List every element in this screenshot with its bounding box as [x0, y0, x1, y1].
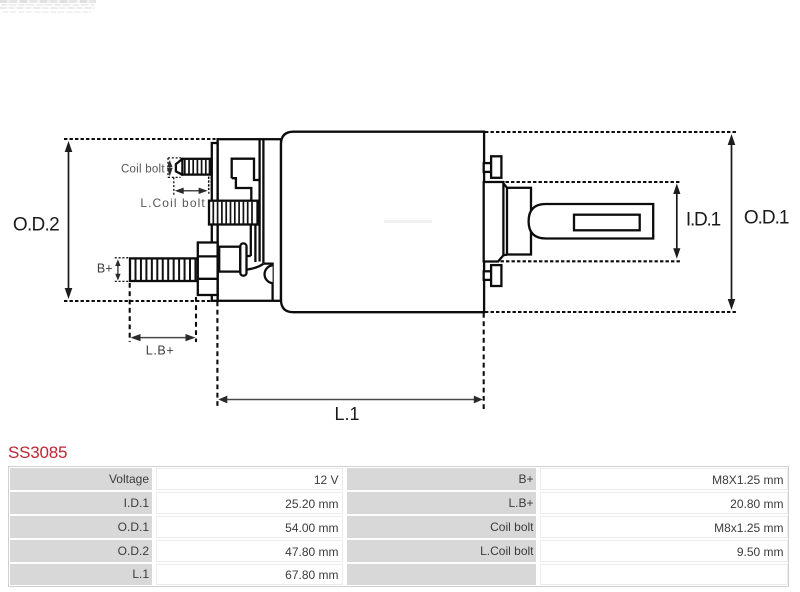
- svg-text:O.D.1: O.D.1: [744, 207, 789, 228]
- svg-text:L.Coil bolt: L.Coil bolt: [140, 196, 205, 210]
- svg-text:L.1: L.1: [334, 404, 359, 424]
- svg-text:Coil bolt: Coil bolt: [121, 163, 165, 175]
- svg-text:O.D.2: O.D.2: [13, 215, 59, 236]
- svg-text:B+: B+: [97, 261, 113, 275]
- svg-text:L.B+: L.B+: [146, 343, 174, 357]
- svg-text:I.D.1: I.D.1: [686, 209, 721, 230]
